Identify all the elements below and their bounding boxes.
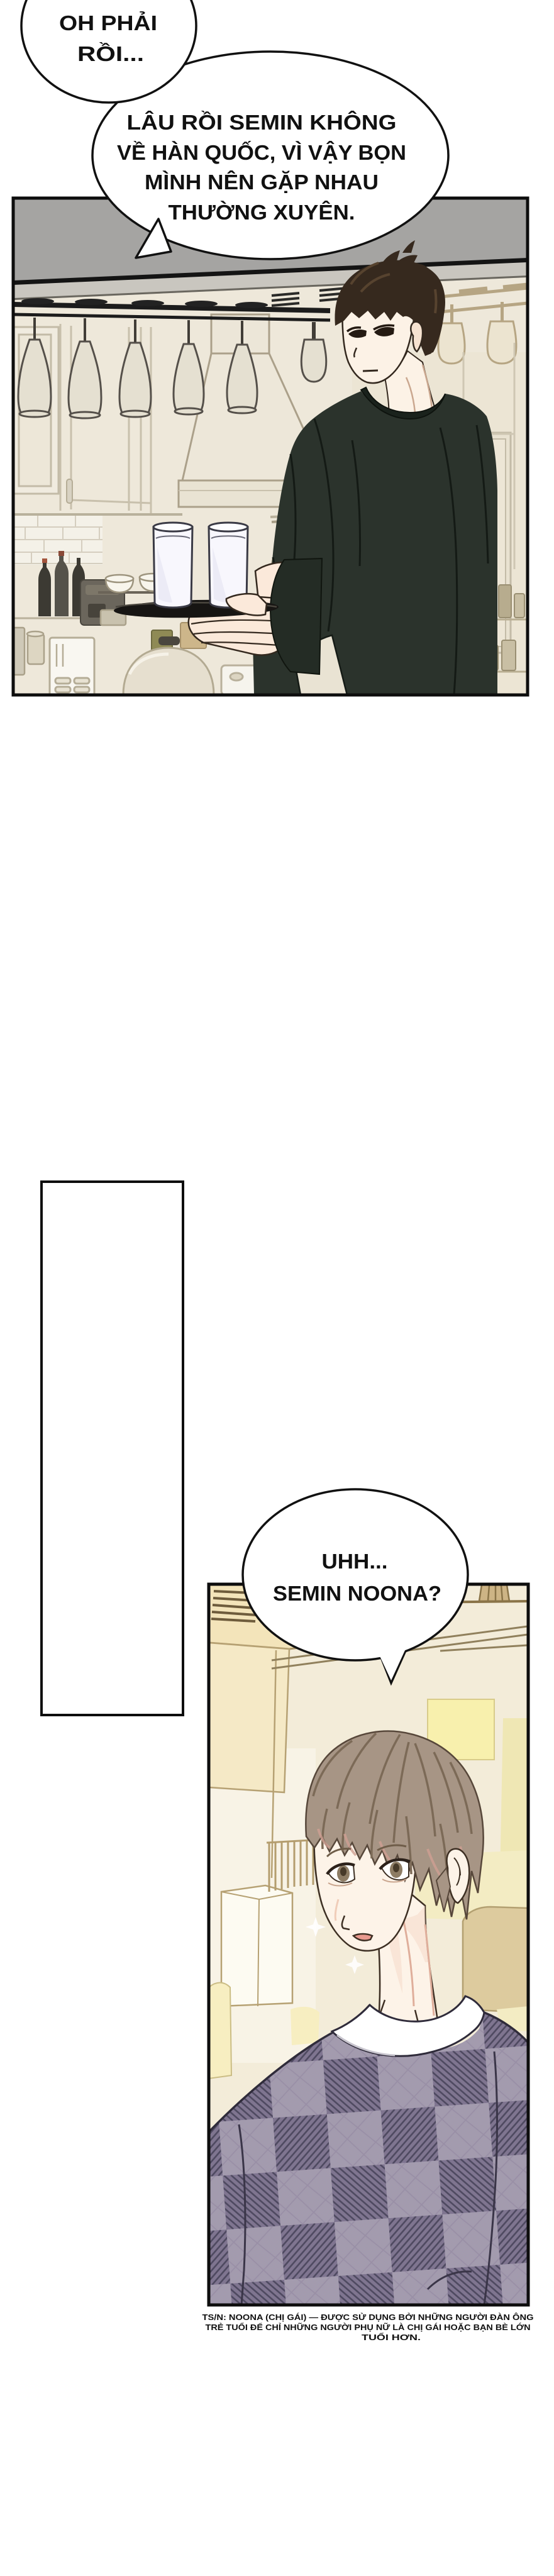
svg-text:OH PHẢI: OH PHẢI xyxy=(59,11,157,35)
svg-text:UHH...: UHH... xyxy=(322,1550,388,1573)
svg-text:SEMIN NOONA?: SEMIN NOONA? xyxy=(273,1582,441,1605)
svg-text:TRẺ TUỔI ĐỂ CHỈ NHỮNG NGƯỜI PH: TRẺ TUỔI ĐỂ CHỈ NHỮNG NGƯỜI PHỤ NỮ LÀ CH… xyxy=(206,2323,531,2332)
svg-text:LÂU RỒI SEMIN KHÔNG: LÂU RỒI SEMIN KHÔNG xyxy=(127,110,397,134)
svg-text:TUỔI HƠN.: TUỔI HƠN. xyxy=(362,2333,421,2342)
svg-text:VỀ HÀN QUỐC, VÌ VẬY BỌN: VỀ HÀN QUỐC, VÌ VẬY BỌN xyxy=(117,140,406,164)
svg-text:MÌNH NÊN GẶP NHAU: MÌNH NÊN GẶP NHAU xyxy=(145,170,379,194)
svg-text:RỒI...: RỒI... xyxy=(77,42,144,65)
svg-text:THƯỜNG XUYÊN.: THƯỜNG XUYÊN. xyxy=(169,201,355,224)
svg-text:TS/N: NOONA (CHỊ GÁI) — ĐƯỢC S: TS/N: NOONA (CHỊ GÁI) — ĐƯỢC SỬ DỤNG BỞI… xyxy=(202,2312,534,2322)
